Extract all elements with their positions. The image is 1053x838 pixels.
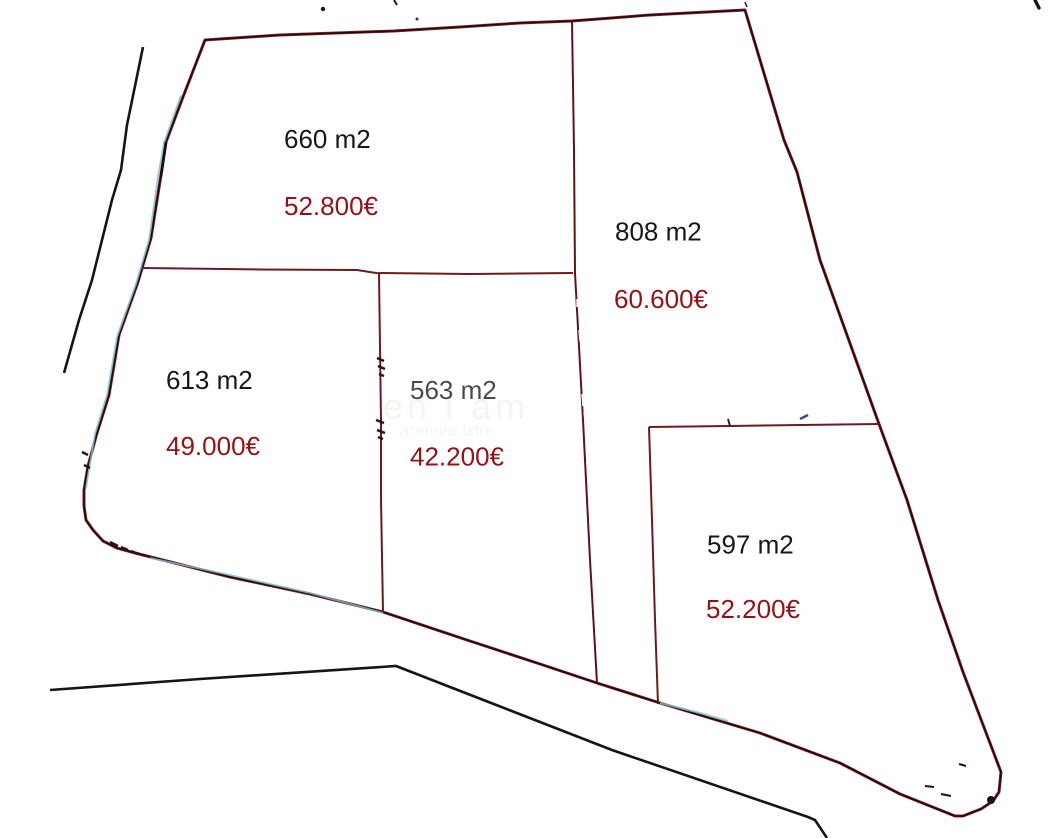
svg-text:597 m2: 597 m2: [707, 530, 794, 560]
svg-text:808 m2: 808 m2: [615, 217, 702, 247]
svg-text:52.200€: 52.200€: [706, 594, 801, 624]
svg-text:49.000€: 49.000€: [166, 431, 261, 461]
svg-text:aretnire lstre: aretnire lstre: [400, 421, 494, 440]
svg-text:660 m2: 660 m2: [284, 124, 371, 154]
svg-text:613 m2: 613 m2: [166, 365, 253, 395]
svg-text:60.600€: 60.600€: [614, 284, 709, 314]
svg-text:42.200€: 42.200€: [410, 442, 505, 472]
svg-text:563 m2: 563 m2: [410, 375, 497, 405]
svg-text:52.800€: 52.800€: [284, 191, 379, 221]
